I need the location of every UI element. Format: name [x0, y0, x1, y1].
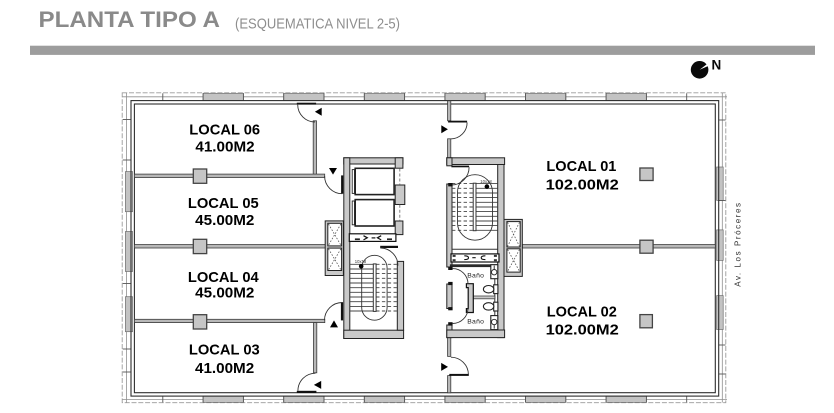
svg-text:41.00M2: 41.00M2	[195, 140, 254, 156]
svg-text:45.00M2: 45.00M2	[195, 285, 254, 301]
svg-text:LOCAL 06: LOCAL 06	[189, 122, 260, 138]
svg-text:Baño: Baño	[467, 272, 484, 279]
svg-text:41.00M2: 41.00M2	[195, 361, 254, 377]
svg-text:10x18: 10x18	[480, 179, 492, 184]
svg-text:LOCAL 02: LOCAL 02	[547, 304, 617, 321]
svg-text:10x18: 10x18	[355, 259, 367, 264]
svg-text:LOCAL 04: LOCAL 04	[188, 270, 260, 286]
svg-text:(ESQUEMATICA NIVEL 2-5): (ESQUEMATICA NIVEL 2-5)	[235, 16, 400, 33]
svg-text:45.00M2: 45.00M2	[195, 213, 254, 229]
svg-text:LOCAL 05: LOCAL 05	[188, 196, 259, 212]
svg-text:N: N	[712, 58, 722, 73]
svg-text:PLANTA TIPO A: PLANTA TIPO A	[39, 7, 221, 32]
svg-text:LOCAL 01: LOCAL 01	[546, 158, 616, 175]
svg-text:102.00M2: 102.00M2	[546, 322, 619, 339]
svg-text:Av. Los Próceres: Av. Los Próceres	[734, 202, 743, 287]
svg-text:Baño: Baño	[467, 318, 484, 325]
svg-text:102.00M2: 102.00M2	[546, 177, 619, 194]
svg-text:LOCAL 03: LOCAL 03	[189, 342, 260, 358]
